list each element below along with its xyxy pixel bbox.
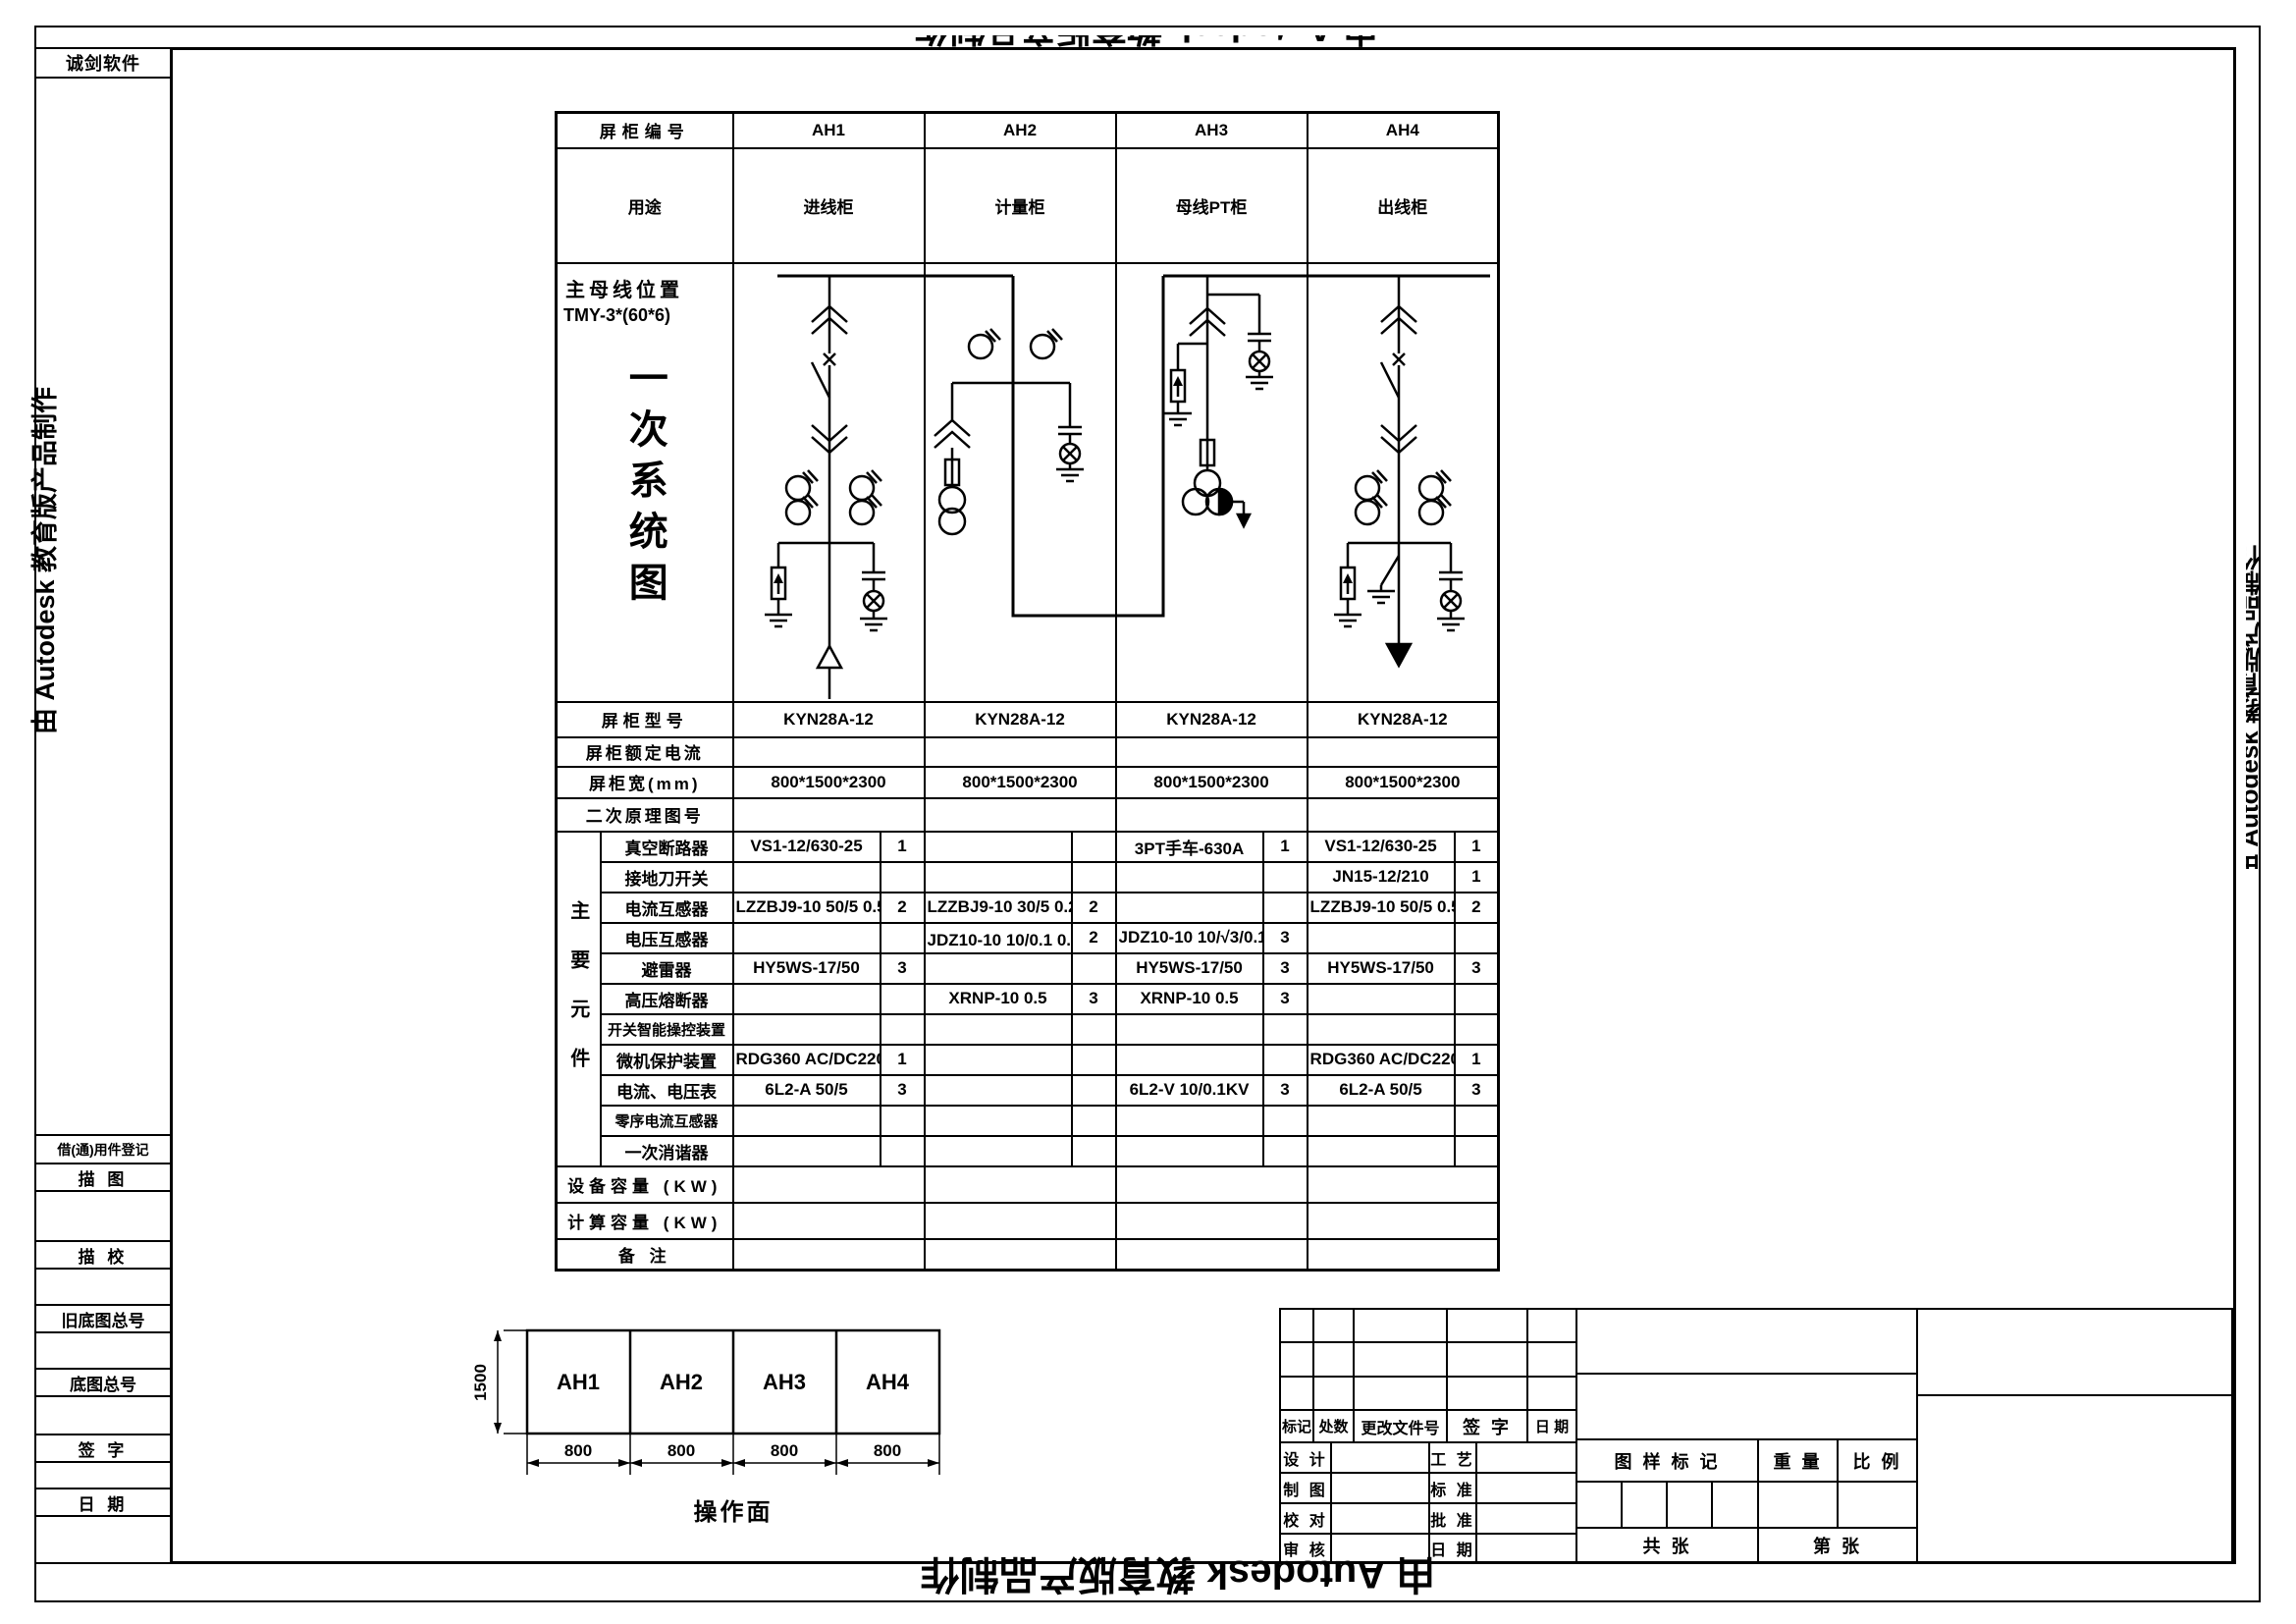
diagram-header-cell: 主母线位置 TMY-3*(60*6) 一次系统图 (557, 263, 733, 702)
sidebar-blank-6 (34, 1515, 172, 1564)
design-label: 设 计 (1279, 1441, 1332, 1474)
comp-model: 6L2-A 50/5 (733, 1075, 881, 1106)
component-label: 真空断路器 (601, 832, 733, 862)
drawing-sheet: 诚剑软件 借(通)用件登记 描 图 描 校 旧底图总号 底图总号 签 字 日 期… (0, 0, 2296, 1624)
sidebar-row-old-no: 旧底图总号 (34, 1304, 172, 1333)
component-label: 开关智能操控装置 (601, 1014, 733, 1045)
table-row: 备 注 (557, 1239, 1499, 1271)
comp-qty (881, 862, 925, 893)
process-value (1475, 1441, 1577, 1474)
comp-model (925, 1075, 1072, 1106)
weight-value (1757, 1481, 1839, 1529)
secondary-no-ah2 (925, 798, 1116, 832)
rev-cell (1353, 1341, 1448, 1378)
comp-qty: 3 (1263, 923, 1308, 953)
comp-model (733, 862, 881, 893)
cabinet-label: AH2 (660, 1370, 703, 1394)
model-ah3: KYN28A-12 (1116, 702, 1308, 737)
approve-value (1475, 1502, 1577, 1535)
rev-cell (1446, 1376, 1528, 1411)
height-dimension: 1500 (471, 1364, 490, 1401)
comp-qty (1263, 1045, 1308, 1075)
panel-spec-table: 屏柜编号 AH1 AH2 AH3 AH4 用途 进线柜 计量柜 母线PT柜 出线… (555, 111, 1500, 1272)
model-ah4: KYN28A-12 (1308, 702, 1499, 737)
comp-qty (881, 1136, 925, 1166)
calc-capacity-ah1 (733, 1203, 925, 1239)
diagram-cell-ah1 (733, 263, 925, 702)
stamp-label: 图 样 标 记 (1575, 1438, 1759, 1483)
sidebar-blank-4 (34, 1395, 172, 1435)
comp-model: XRNP-10 0.5 (1116, 984, 1263, 1014)
comp-model (1308, 1014, 1455, 1045)
usage-ah3: 母线PT柜 (1116, 148, 1308, 263)
comp-model (1308, 923, 1455, 953)
comp-qty: 1 (1455, 862, 1499, 893)
comp-qty: 3 (881, 953, 925, 984)
comp-model (1308, 1136, 1455, 1166)
component-label: 电流互感器 (601, 893, 733, 923)
comp-qty (881, 1106, 925, 1136)
comp-model (925, 1136, 1072, 1166)
standard-label: 标 准 (1428, 1472, 1477, 1504)
comp-qty: 3 (1263, 1075, 1308, 1106)
rev-header-docno: 更改文件号 (1353, 1409, 1448, 1443)
comp-model (1116, 1045, 1263, 1075)
column-header-ah2: AH2 (925, 113, 1116, 148)
comp-model: 3PT手车-630A (1116, 832, 1263, 862)
drawing-number-area (1916, 1394, 2233, 1564)
panel-size-ah1: 800*1500*2300 (733, 767, 925, 798)
table-row: 开关智能操控装置 (557, 1014, 1499, 1045)
rev-cell (1526, 1341, 1577, 1378)
comp-qty (1455, 1136, 1499, 1166)
stamp-box (1621, 1481, 1668, 1529)
comp-model (1116, 862, 1263, 893)
column-header-ah4: AH4 (1308, 113, 1499, 148)
sidebar-blank-5 (34, 1461, 172, 1489)
comp-model: HY5WS-17/50 (1116, 953, 1263, 984)
comp-qty: 3 (881, 1075, 925, 1106)
calc-capacity-ah2 (925, 1203, 1116, 1239)
rev-cell (1353, 1308, 1448, 1343)
rev-cell (1446, 1308, 1528, 1343)
column-header-ah1: AH1 (733, 113, 925, 148)
process-label: 工 艺 (1428, 1441, 1477, 1474)
comp-qty: 2 (1455, 893, 1499, 923)
sheet-number: 第 张 (1757, 1527, 1918, 1564)
comp-model (733, 923, 881, 953)
cabinet-label: AH1 (557, 1370, 600, 1394)
sidebar-row-base-no: 底图总号 (34, 1368, 172, 1397)
remarks-ah4 (1308, 1239, 1499, 1271)
rev-cell (1279, 1341, 1314, 1378)
comp-model (925, 832, 1072, 862)
model-ah2: KYN28A-12 (925, 702, 1116, 737)
comp-qty (1263, 1014, 1308, 1045)
table-row: 电流、电压表 6L2-A 50/5 3 6L2-V 10/0.1KV 3 6L2… (557, 1075, 1499, 1106)
stamp-box (1666, 1481, 1713, 1529)
comp-qty: 3 (1455, 953, 1499, 984)
component-label: 接地刀开关 (601, 862, 733, 893)
rated-current-ah2 (925, 737, 1116, 767)
comp-qty: 1 (881, 1045, 925, 1075)
comp-model: HY5WS-17/50 (1308, 953, 1455, 984)
busbar-label: 主母线位置 (565, 274, 683, 302)
remarks-ah2 (925, 1239, 1116, 1271)
width-dimension: 800 (564, 1441, 592, 1460)
table-row: 屏柜额定电流 (557, 737, 1499, 767)
usage-label: 用途 (557, 148, 733, 263)
sidebar-row-check: 描 校 (34, 1240, 172, 1270)
stamp-box (1575, 1481, 1623, 1529)
vendor-stamp: 诚剑软件 (34, 47, 172, 79)
comp-model: JDZ10-10 10/0.1 0.2级 (925, 923, 1072, 953)
cabinet-label: AH4 (866, 1370, 910, 1394)
component-label: 微机保护装置 (601, 1045, 733, 1075)
comp-model: LZZBJ9-10 50/5 0.5/10P10 (733, 893, 881, 923)
panel-size-label: 屏柜宽(mm) (557, 767, 733, 798)
table-row: 主要元件 真空断路器 VS1-12/630-25 1 3PT手车-630A 1 … (557, 832, 1499, 862)
vendor-label: 诚剑软件 (66, 50, 140, 76)
stamp-box (1711, 1481, 1759, 1529)
comp-qty (1263, 893, 1308, 923)
date-label: 日 期 (1428, 1533, 1477, 1564)
rev-cell (1446, 1341, 1528, 1378)
comp-model: RDG360 AC/DC220V 5A (1308, 1045, 1455, 1075)
component-label: 避雷器 (601, 953, 733, 984)
rev-cell (1312, 1376, 1355, 1411)
model-ah1: KYN28A-12 (733, 702, 925, 737)
table-row: 微机保护装置 RDG360 AC/DC220V 5A 1 RDG360 AC/D… (557, 1045, 1499, 1075)
comp-qty (1455, 1106, 1499, 1136)
comp-model (925, 1045, 1072, 1075)
usage-ah2: 计量柜 (925, 148, 1116, 263)
comp-model (1116, 1106, 1263, 1136)
rev-cell (1526, 1308, 1577, 1343)
comp-qty (1263, 862, 1308, 893)
watermark-top-clipped: 由 Autodesk 教育版产品制作 (911, 35, 1382, 50)
component-label: 一次消谐器 (601, 1136, 733, 1166)
comp-qty (1263, 1106, 1308, 1136)
rev-cell (1312, 1308, 1355, 1343)
rated-current-label: 屏柜额定电流 (557, 737, 733, 767)
comp-model: JDZ10-10 10/√3/0.1/√3/0.1/3kV (1116, 923, 1263, 953)
comp-model: LZZBJ9-10 30/5 0.2S (925, 893, 1072, 923)
equip-capacity-ah1 (733, 1166, 925, 1203)
secondary-no-ah4 (1308, 798, 1499, 832)
weight-label: 重 量 (1757, 1438, 1839, 1483)
equip-capacity-label: 设备容量 (KW) (557, 1166, 733, 1203)
comp-model: VS1-12/630-25 (733, 832, 881, 862)
rev-header-count: 处数 (1312, 1409, 1355, 1443)
rev-cell (1526, 1376, 1577, 1411)
sidebar-blank-2 (34, 1268, 172, 1306)
cabinet-label: AH3 (763, 1370, 806, 1394)
draft-label: 制 图 (1279, 1472, 1332, 1504)
approve-label: 批 准 (1428, 1502, 1477, 1535)
comp-qty: 2 (881, 893, 925, 923)
scale-value (1837, 1481, 1918, 1529)
remarks-ah1 (733, 1239, 925, 1271)
table-row: 电压互感器 JDZ10-10 10/0.1 0.2级 2 JDZ10-10 10… (557, 923, 1499, 953)
comp-qty (1072, 1136, 1116, 1166)
comp-qty (1072, 1014, 1116, 1045)
comp-qty (1455, 923, 1499, 953)
comp-qty (1072, 862, 1116, 893)
audit-value (1330, 1533, 1430, 1564)
rev-cell (1279, 1376, 1314, 1411)
component-label: 电压互感器 (601, 923, 733, 953)
cabinet-layout-drawing: AH1 AH2 AH3 AH4 1500 800 800 800 800 操作面 (447, 1316, 1016, 1542)
table-row: 屏柜编号 AH1 AH2 AH3 AH4 (557, 113, 1499, 148)
comp-qty: 3 (1263, 953, 1308, 984)
comp-model (1308, 1106, 1455, 1136)
audit-label: 审 核 (1279, 1533, 1332, 1564)
rev-header-date: 日 期 (1526, 1409, 1577, 1443)
comp-model: HY5WS-17/50 (733, 953, 881, 984)
table-row: 电流互感器 LZZBJ9-10 50/5 0.5/10P10 2 LZZBJ9-… (557, 893, 1499, 923)
watermark-right-clipped: 由 Autodesk 教育版产品制作 (2246, 545, 2260, 869)
comp-qty (1455, 1014, 1499, 1045)
comp-qty: 1 (1455, 1045, 1499, 1075)
table-row: 零序电流互感器 (557, 1106, 1499, 1136)
comp-model (925, 862, 1072, 893)
comp-qty (881, 984, 925, 1014)
components-group-label: 主要元件 (557, 832, 601, 1166)
equip-capacity-ah4 (1308, 1166, 1499, 1203)
component-label: 零序电流互感器 (601, 1106, 733, 1136)
calc-capacity-label: 计算容量 (KW) (557, 1203, 733, 1239)
comp-model (733, 1014, 881, 1045)
table-row: 计算容量 (KW) (557, 1203, 1499, 1239)
comp-model (1308, 984, 1455, 1014)
remarks-ah3 (1116, 1239, 1308, 1271)
comp-model: 6L2-A 50/5 (1308, 1075, 1455, 1106)
table-row: 二次原理图号 (557, 798, 1499, 832)
comp-model (733, 1106, 881, 1136)
comp-qty (1072, 1106, 1116, 1136)
title-block: 标记 处数 更改文件号 签 字 日 期 设 计 工 艺 制 图 标 准 校 对 … (1279, 1308, 2233, 1564)
comp-model: VS1-12/630-25 (1308, 832, 1455, 862)
diagram-title: 一次系统图 (616, 357, 673, 613)
calc-capacity-ah3 (1116, 1203, 1308, 1239)
stamp-area-mid (1575, 1373, 1918, 1440)
comp-qty (881, 1014, 925, 1045)
comp-qty (1072, 953, 1116, 984)
comp-model (1116, 893, 1263, 923)
comp-qty (1263, 1136, 1308, 1166)
sidebar-row-borrow: 借(通)用件登记 (34, 1134, 172, 1164)
diagram-cell-ah4 (1308, 263, 1499, 702)
rev-cell (1312, 1341, 1355, 1378)
width-dimension: 800 (667, 1441, 695, 1460)
comp-model: RDG360 AC/DC220V 5A (733, 1045, 881, 1075)
secondary-no-ah3 (1116, 798, 1308, 832)
comp-qty: 1 (881, 832, 925, 862)
comp-model (1116, 1136, 1263, 1166)
rated-current-ah1 (733, 737, 925, 767)
component-label: 高压熔断器 (601, 984, 733, 1014)
date-value (1475, 1533, 1577, 1564)
table-row: 屏柜型号 KYN28A-12 KYN28A-12 KYN28A-12 KYN28… (557, 702, 1499, 737)
watermark-left: 由 Autodesk 教育版产品制作 (24, 387, 62, 734)
comp-qty: 2 (1072, 923, 1116, 953)
rev-cell (1353, 1376, 1448, 1411)
sidebar-row-sign: 签 字 (34, 1434, 172, 1463)
diagram-cell-ah2 (925, 263, 1116, 702)
secondary-no-label: 二次原理图号 (557, 798, 733, 832)
rev-header-mark: 标记 (1279, 1409, 1314, 1443)
comp-qty (1072, 1045, 1116, 1075)
usage-ah4: 出线柜 (1308, 148, 1499, 263)
rated-current-ah3 (1116, 737, 1308, 767)
comp-qty: 1 (1455, 832, 1499, 862)
panel-size-ah3: 800*1500*2300 (1116, 767, 1308, 798)
comp-model (925, 1014, 1072, 1045)
table-row: 一次消谐器 (557, 1136, 1499, 1166)
comp-model: 6L2-V 10/0.1KV (1116, 1075, 1263, 1106)
busbar-spec: TMY-3*(60*6) (563, 305, 670, 326)
component-label: 电流、电压表 (601, 1075, 733, 1106)
rev-header-sign: 签 字 (1446, 1409, 1528, 1443)
comp-model (925, 1106, 1072, 1136)
equip-capacity-ah3 (1116, 1166, 1308, 1203)
rated-current-ah4 (1308, 737, 1499, 767)
column-header-ah3: AH3 (1116, 113, 1308, 148)
table-row: 屏柜宽(mm) 800*1500*2300 800*1500*2300 800*… (557, 767, 1499, 798)
table-row: 高压熔断器 XRNP-10 0.5 3 XRNP-10 0.5 3 (557, 984, 1499, 1014)
comp-qty: 3 (1072, 984, 1116, 1014)
comp-model (1116, 1014, 1263, 1045)
standard-value (1475, 1472, 1577, 1504)
comp-model: XRNP-10 0.5 (925, 984, 1072, 1014)
proof-value (1330, 1502, 1430, 1535)
usage-ah1: 进线柜 (733, 148, 925, 263)
width-dimension: 800 (771, 1441, 798, 1460)
table-row: 用途 进线柜 计量柜 母线PT柜 出线柜 (557, 148, 1499, 263)
comp-model (733, 1136, 881, 1166)
table-row: 主母线位置 TMY-3*(60*6) 一次系统图 (557, 263, 1499, 702)
width-dimension: 800 (874, 1441, 901, 1460)
model-row-label: 屏柜型号 (557, 702, 733, 737)
comp-model (925, 953, 1072, 984)
panel-id-header: 屏柜编号 (557, 113, 733, 148)
panel-size-ah2: 800*1500*2300 (925, 767, 1116, 798)
comp-qty: 3 (1455, 1075, 1499, 1106)
stamp-area-top (1575, 1308, 1918, 1375)
calc-capacity-ah4 (1308, 1203, 1499, 1239)
remarks-label: 备 注 (557, 1239, 733, 1271)
comp-qty: 2 (1072, 893, 1116, 923)
drawing-name-area (1916, 1308, 2233, 1396)
rev-cell (1279, 1308, 1314, 1343)
comp-model: LZZBJ9-10 50/5 0.5/10P10 (1308, 893, 1455, 923)
sidebar-blank-1 (34, 1190, 172, 1242)
comp-qty (881, 923, 925, 953)
comp-model: JN15-12/210 (1308, 862, 1455, 893)
comp-model (733, 984, 881, 1014)
table-row: 避雷器 HY5WS-17/50 3 HY5WS-17/50 3 HY5WS-17… (557, 953, 1499, 984)
proof-label: 校 对 (1279, 1502, 1332, 1535)
comp-qty (1072, 832, 1116, 862)
draft-value (1330, 1472, 1430, 1504)
secondary-no-ah1 (733, 798, 925, 832)
table-row: 接地刀开关 JN15-12/210 1 (557, 862, 1499, 893)
operation-face-caption: 操作面 (694, 1499, 774, 1526)
comp-qty: 3 (1263, 984, 1308, 1014)
sheets-total: 共 张 (1575, 1527, 1759, 1564)
sidebar-blank-3 (34, 1331, 172, 1370)
sidebar-row-date: 日 期 (34, 1488, 172, 1517)
panel-size-ah4: 800*1500*2300 (1308, 767, 1499, 798)
comp-qty (1072, 1075, 1116, 1106)
comp-qty: 1 (1263, 832, 1308, 862)
sidebar-row-trace: 描 图 (34, 1163, 172, 1192)
scale-label: 比 例 (1837, 1438, 1918, 1483)
diagram-cell-ah3 (1116, 263, 1308, 702)
equip-capacity-ah2 (925, 1166, 1116, 1203)
comp-qty (1455, 984, 1499, 1014)
table-row: 设备容量 (KW) (557, 1166, 1499, 1203)
design-value (1330, 1441, 1430, 1474)
